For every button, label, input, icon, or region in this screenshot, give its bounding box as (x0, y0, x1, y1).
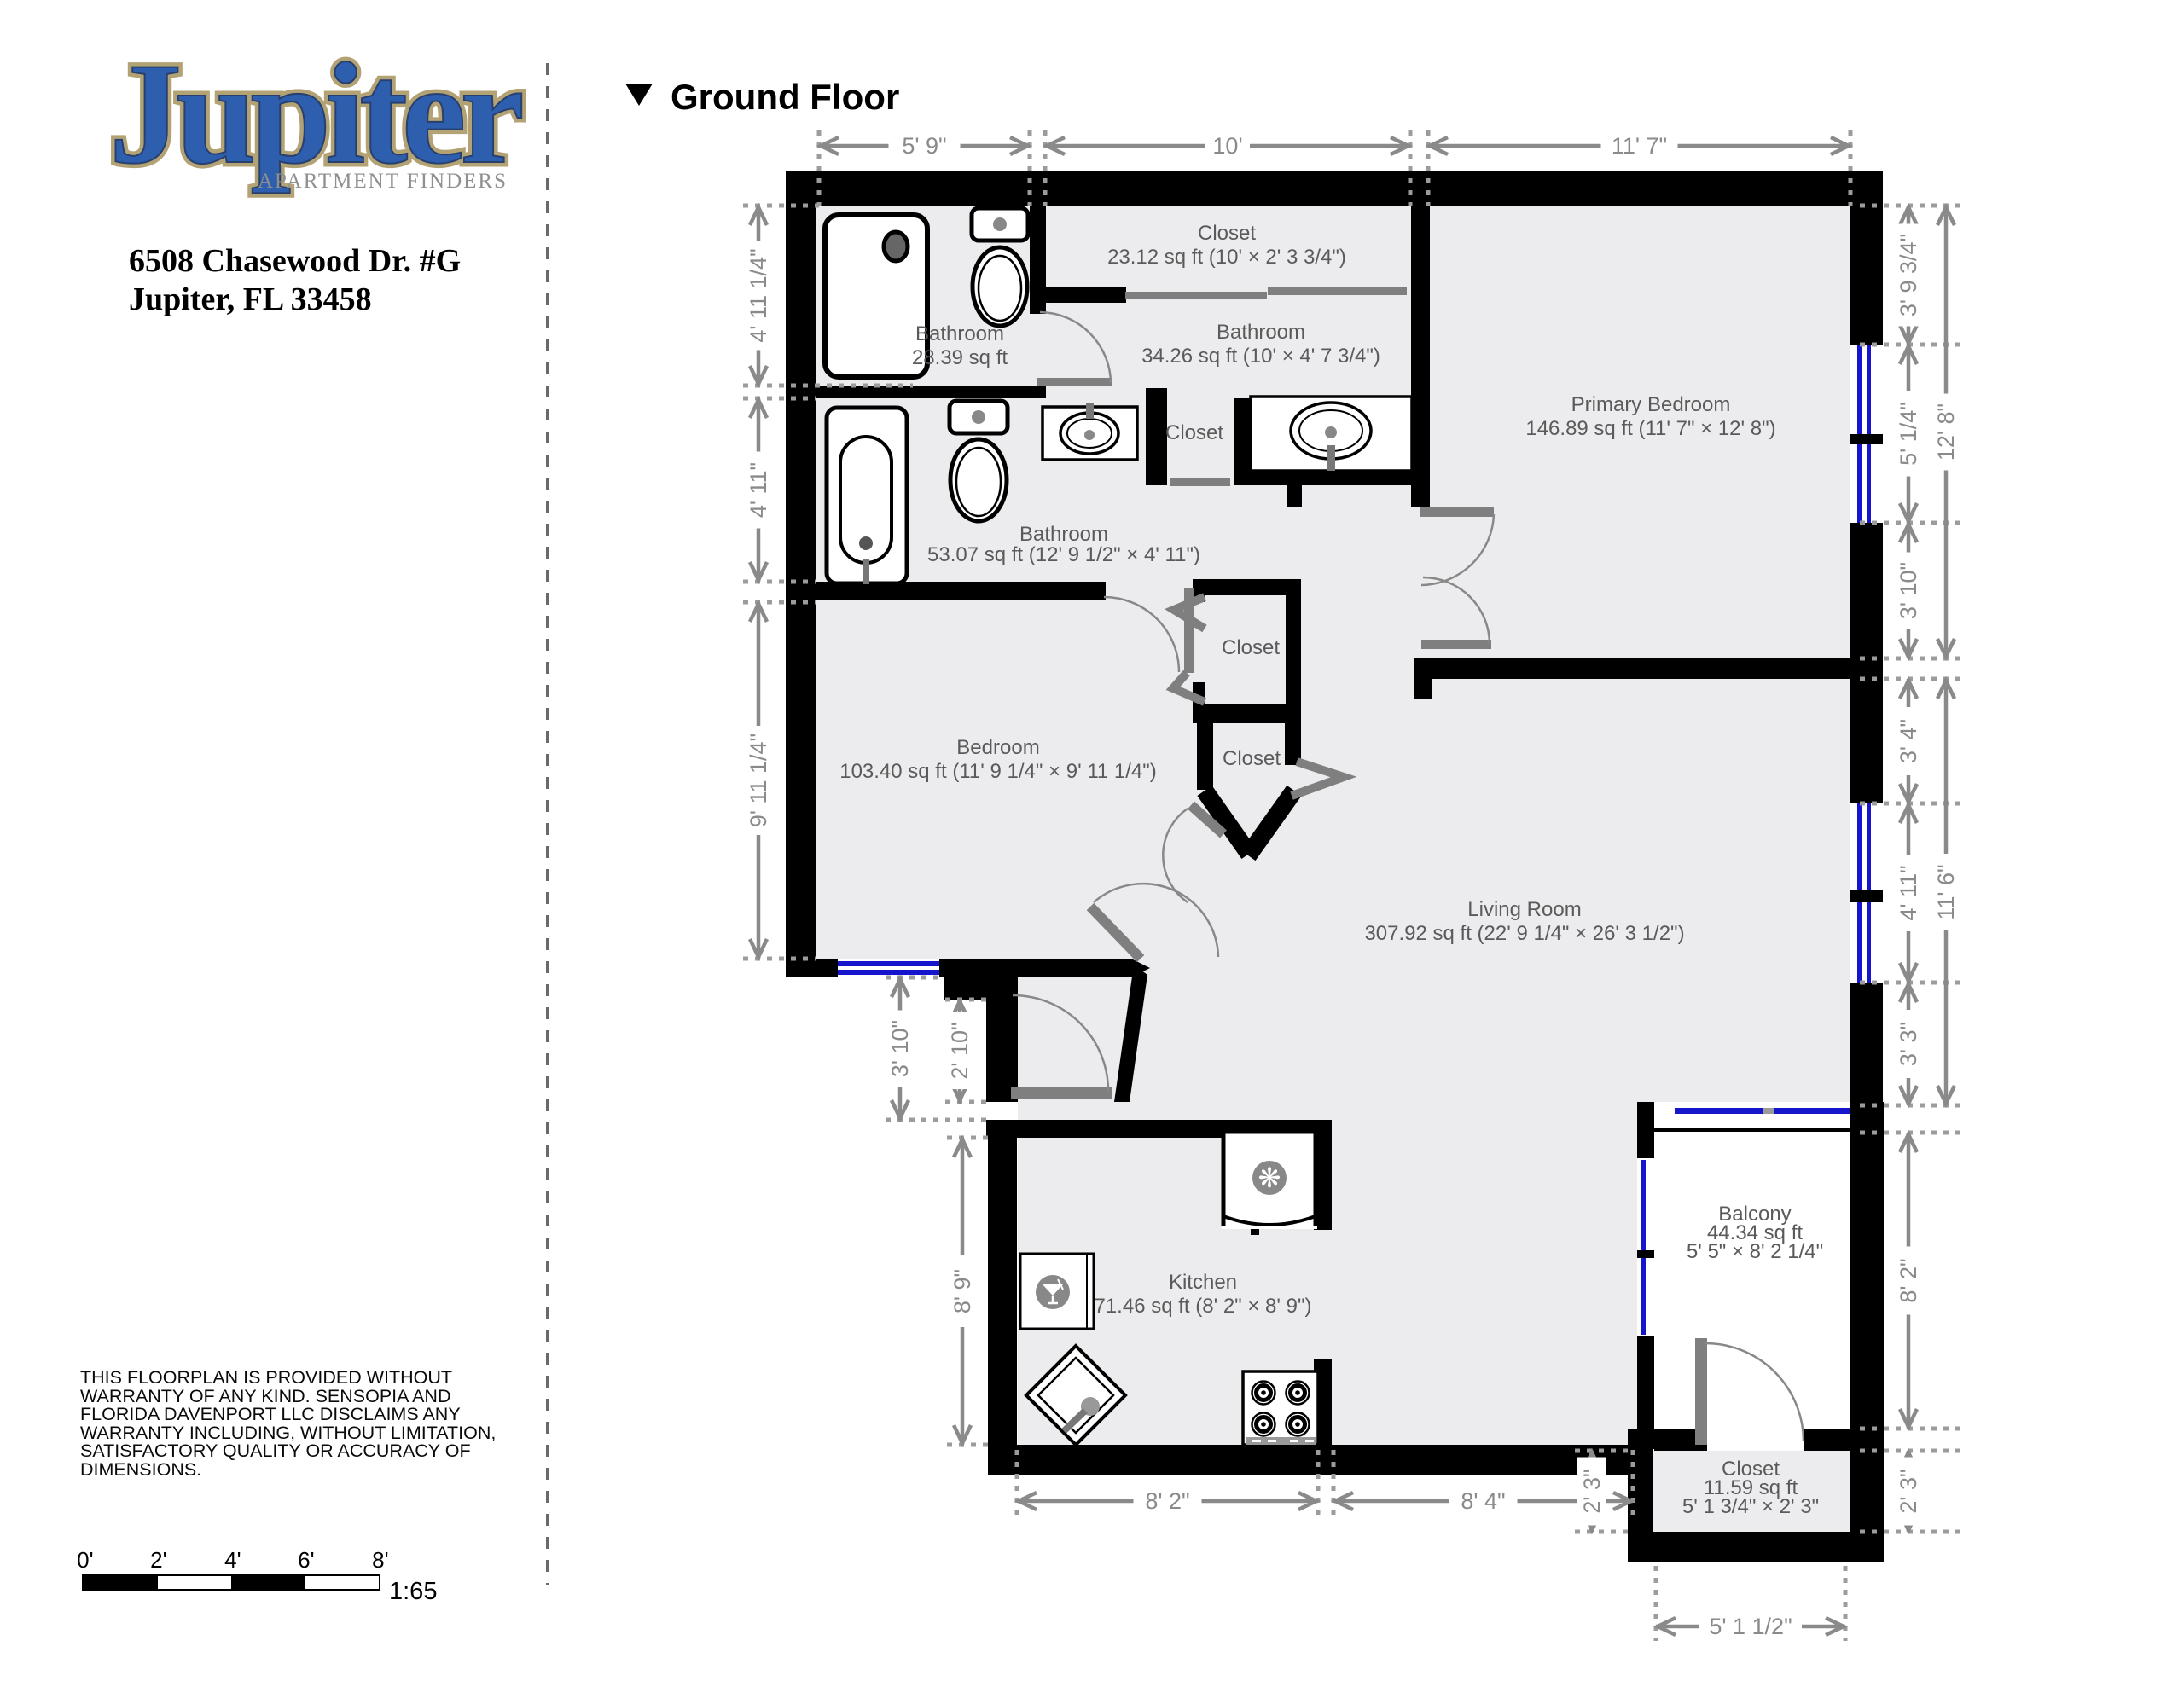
svg-text:Kitchen: Kitchen (1169, 1271, 1237, 1294)
svg-text:53.07 sq ft (12' 9 1/2" × 4' 1: 53.07 sq ft (12' 9 1/2" × 4' 11") (927, 543, 1200, 566)
svg-text:Closet: Closet (1165, 421, 1223, 444)
svg-text:3' 4": 3' 4" (1896, 719, 1921, 763)
svg-text:11' 7": 11' 7" (1612, 133, 1667, 159)
svg-text:Primary Bedroom: Primary Bedroom (1571, 393, 1731, 416)
svg-text:23.12 sq ft (10' × 2' 3 3/4"): 23.12 sq ft (10' × 2' 3 3/4") (1107, 246, 1346, 269)
svg-text:4' 11": 4' 11" (746, 462, 771, 518)
svg-text:2' 3": 2' 3" (1896, 1469, 1921, 1513)
svg-text:3' 10": 3' 10" (1896, 562, 1921, 619)
svg-text:5' 1 3/4" × 2' 3": 5' 1 3/4" × 2' 3" (1682, 1495, 1819, 1518)
svg-text:❋: ❋ (1258, 1162, 1281, 1193)
svg-text:34.26 sq ft (10' × 4' 7 3/4"): 34.26 sq ft (10' × 4' 7 3/4") (1141, 345, 1380, 368)
svg-text:12' 8": 12' 8" (1933, 403, 1959, 461)
svg-text:8' 4": 8' 4" (1461, 1488, 1505, 1514)
svg-text:8' 9": 8' 9" (950, 1269, 975, 1313)
svg-text:4' 11": 4' 11" (1896, 865, 1921, 920)
svg-text:2' 10": 2' 10" (947, 1022, 973, 1079)
svg-text:Bathroom: Bathroom (1217, 321, 1305, 344)
svg-text:2' 3": 2' 3" (1579, 1469, 1605, 1513)
svg-text:3' 9 3/4": 3' 9 3/4" (1896, 234, 1921, 316)
svg-text:5' 5" × 8' 2 1/4": 5' 5" × 8' 2 1/4" (1687, 1240, 1823, 1263)
svg-text:11' 6": 11' 6" (1933, 864, 1959, 919)
svg-text:3' 10": 3' 10" (887, 1020, 913, 1077)
svg-text:5' 9": 5' 9" (902, 133, 946, 159)
svg-text:28.39 sq ft: 28.39 sq ft (912, 346, 1008, 369)
svg-text:8' 2": 8' 2" (1896, 1258, 1921, 1302)
svg-text:3' 3": 3' 3" (1896, 1022, 1921, 1066)
svg-text:10': 10' (1212, 133, 1242, 159)
svg-text:Closet: Closet (1223, 747, 1281, 770)
svg-text:Bathroom: Bathroom (1019, 523, 1108, 546)
svg-text:Closet: Closet (1198, 222, 1256, 245)
svg-text:Bedroom: Bedroom (956, 736, 1039, 759)
svg-text:Bathroom: Bathroom (915, 322, 1004, 345)
svg-text:71.46 sq ft (8' 2" × 8' 9"): 71.46 sq ft (8' 2" × 8' 9") (1094, 1295, 1311, 1318)
svg-text:Ground Floor: Ground Floor (671, 77, 899, 117)
svg-text:5' 1 1/2": 5' 1 1/2" (1709, 1614, 1792, 1639)
svg-text:9' 11 1/4": 9' 11 1/4" (746, 733, 771, 827)
svg-text:8' 2": 8' 2" (1145, 1488, 1189, 1514)
svg-text:4' 11 1/4": 4' 11 1/4" (746, 248, 771, 342)
svg-text:146.89 sq ft (11' 7" × 12' 8"): 146.89 sq ft (11' 7" × 12' 8") (1525, 417, 1775, 440)
svg-text:307.92 sq ft (22' 9 1/4" × 26': 307.92 sq ft (22' 9 1/4" × 26' 3 1/2") (1364, 922, 1684, 945)
svg-text:103.40 sq ft (11' 9 1/4" × 9': 103.40 sq ft (11' 9 1/4" × 9' 11 1/4") (839, 760, 1157, 783)
svg-text:Living Room: Living Room (1467, 898, 1581, 921)
svg-text:Closet: Closet (1222, 636, 1280, 659)
svg-text:5' 1/4": 5' 1/4" (1896, 402, 1921, 466)
